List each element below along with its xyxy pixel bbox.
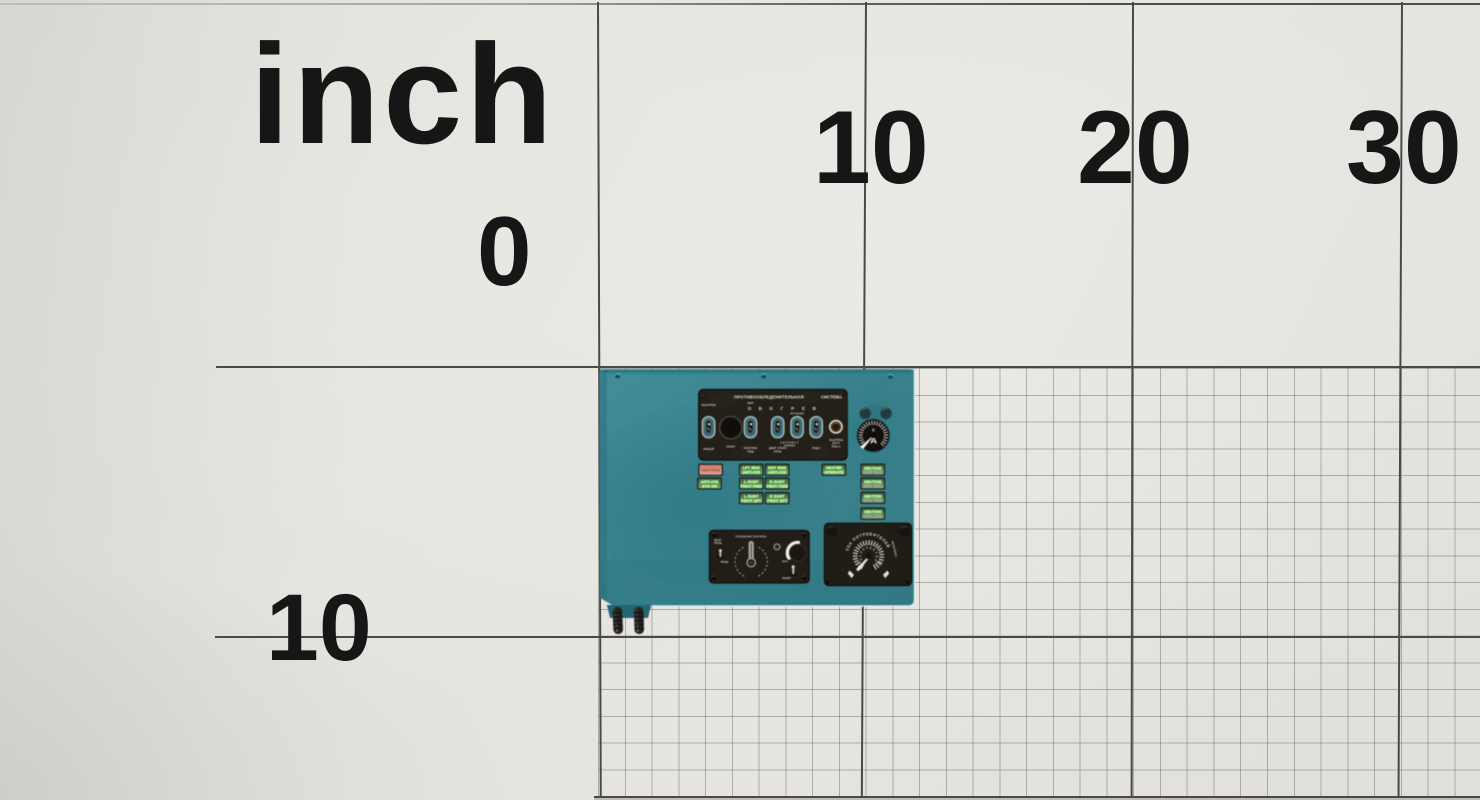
svg-text:1: 1 (858, 555, 862, 557)
svg-text:Е: Е (802, 406, 805, 411)
svg-text:OPERATE: OPERATE (824, 470, 844, 475)
svg-text:О: О (769, 406, 773, 411)
svg-text:ВЫКЛ: ВЫКЛ (727, 445, 735, 449)
svg-text:ПРОВ: ПРОВ (714, 541, 722, 545)
svg-text:ОБОГРЕВ: ОБОГРЕВ (701, 468, 720, 472)
svg-text:PROT AFT: PROT AFT (741, 498, 762, 503)
svg-text:ANTI-ICE: ANTI-ICE (742, 470, 760, 475)
svg-text:СТЕКОЛ: СТЕКОЛ (784, 444, 795, 448)
svg-text:ПОЛОЖЕНИЕ ОБОГРЕВА: ПОЛОЖЕНИЕ ОБОГРЕВА (735, 535, 766, 538)
svg-text:ЛЕВЫЙ: ЛЕВЫЙ (703, 447, 714, 451)
svg-text:ВКЛ: ВКЛ (748, 401, 754, 405)
svg-text:РИО-3: РИО-3 (832, 444, 841, 448)
svg-text:3: 3 (872, 498, 874, 502)
svg-text:ВЫКЛ: ВЫКЛ (783, 576, 791, 580)
svg-text:О: О (748, 406, 752, 411)
svg-text:ОБОГРЕВ: ОБОГРЕВ (702, 403, 716, 407)
svg-text:Р: Р (791, 406, 794, 411)
svg-text:ПРОТИВООБЛЕДЕНИТЕЛЬНАЯ: ПРОТИВООБЛЕДЕНИТЕЛЬНАЯ (734, 394, 804, 399)
svg-text:PROT FWD: PROT FWD (741, 483, 763, 488)
svg-text:ANTI-ICE: ANTI-ICE (768, 470, 786, 475)
svg-text:2: 2 (872, 484, 874, 488)
svg-text:1: 1 (872, 470, 874, 474)
svg-text:4: 4 (872, 514, 874, 518)
svg-text:ПРОВ: ПРОВ (721, 560, 729, 564)
svg-text:PROT FWD: PROT FWD (766, 483, 788, 488)
svg-text:ПРАВ: ПРАВ (774, 450, 782, 454)
svg-text:SYS ON: SYS ON (702, 483, 717, 488)
svg-text:ПНД-5: ПНД-5 (812, 446, 821, 450)
svg-text:PROT AFT: PROT AFT (767, 498, 788, 503)
svg-text:ПНД: ПНД (747, 450, 753, 454)
svg-text:РУЧНОЕ: РУЧНОЕ (790, 412, 804, 416)
svg-text:РУЧ: РУЧ (782, 559, 788, 563)
svg-text:Г: Г (781, 406, 784, 411)
svg-text:СИСТЕМА: СИСТЕМА (821, 394, 842, 399)
